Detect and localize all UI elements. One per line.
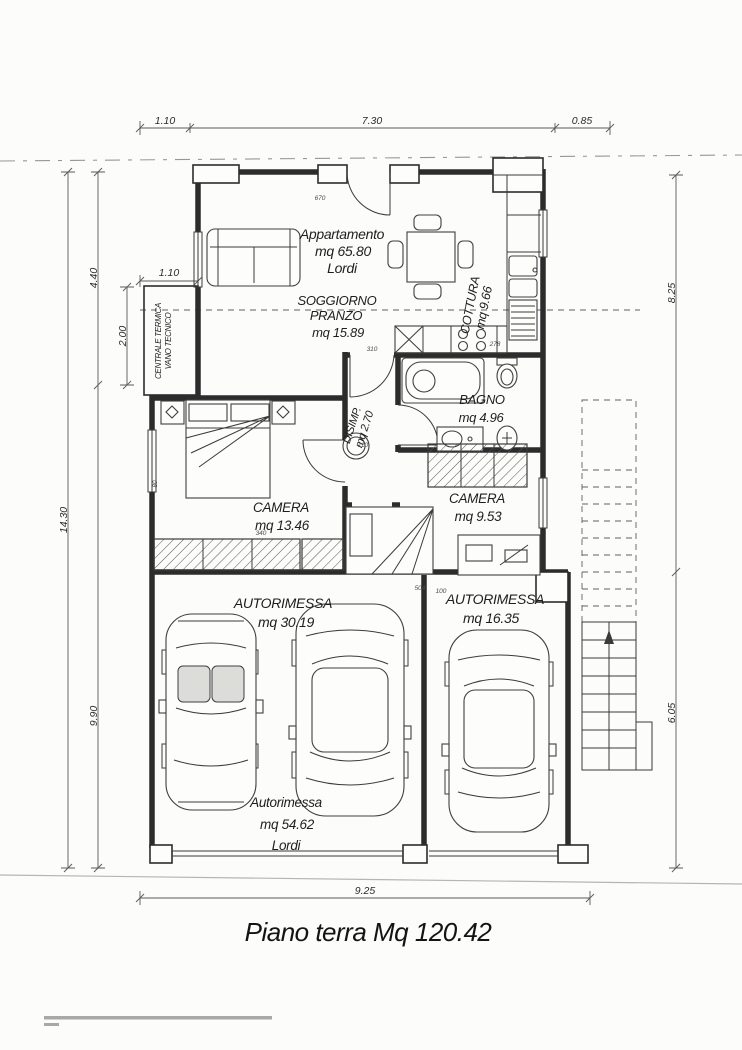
camera2-label-line2: mq 9.53 [455,509,502,524]
car-sedan-large [289,604,411,816]
chair [458,241,473,268]
wall-pier [318,165,347,183]
wall-pier [193,165,239,183]
stairs-up-arrow [604,630,614,644]
annotation: 310 [367,346,378,353]
car-sedan-small [442,630,556,832]
bedroom1-furniture [154,400,344,570]
stairs-upper-dashed [582,400,636,622]
sofa [207,229,300,286]
apartment-label-line3: Lordi [327,260,358,276]
floor-plan-drawing: 1.10 7.30 0.85 14.30 4.40 9.90 2.00 1.10… [0,0,742,1050]
garage-cars [159,604,556,832]
window [539,210,547,257]
mirror [256,700,263,713]
garage1-label-line1: AUTORIMESSA [233,595,332,611]
car-seat [178,666,210,702]
ground-line [0,875,742,884]
dish-drainer [509,300,537,340]
soggiorno-label-line1: SOGGIORNO [298,293,377,308]
dim-line-right [669,171,683,872]
centrale-termica-label: CENTRALE TERMICA VANO TECNICO [154,303,173,379]
apartment-label-line1: Appartamento [299,226,385,242]
bedroom1-door [303,440,345,482]
cottura-label: COTTURA mq 9.66 [458,275,497,338]
fine-print [44,1016,272,1026]
mirror [159,700,166,713]
plan-title: Piano terra Mq 120.42 [245,917,493,947]
dining-table [388,215,473,299]
dim-right-lower: 6.05 [666,703,678,724]
garage-pillar-middle [403,845,427,863]
chair [414,284,441,299]
entrance-door [347,172,390,215]
chair [388,241,403,268]
garage-total-label-line2: mq 54.62 [260,817,315,832]
stairs [582,400,652,770]
annotation: 80 [152,480,159,488]
centrale-label-line2: VANO TECNICO [164,312,173,369]
wall-pier [390,165,419,183]
garage-total-label-line3: Lordi [272,838,302,853]
soggiorno-label-line3: mq 15.89 [312,325,364,340]
dim-top-right: 0.85 [572,115,593,127]
garage1-label-line2: mq 30.19 [258,614,314,630]
dim-right-upper: 8.25 [666,283,678,304]
dim-left-outer: 14.30 [58,507,70,533]
mirror [549,744,556,756]
floor-plan-page: 1.10 7.30 0.85 14.30 4.40 9.90 2.00 1.10… [0,0,742,1050]
garage-pillar-right [558,845,588,863]
dim-top-middle: 7.30 [362,115,383,127]
dim-tecnico-width: 1.10 [159,267,180,279]
hallway-door [350,355,394,397]
single-bed [346,507,433,574]
stairs-landing [636,722,652,770]
dim-bottom: 9.25 [355,885,376,897]
garage-pillar-left [150,845,172,863]
desk [458,535,540,575]
window [539,478,547,528]
camera1-label-line1: CAMERA [253,500,309,515]
mirror [289,726,296,739]
stairs-lower-flight [582,622,652,770]
apartment-label-line2: mq 65.80 [315,243,371,259]
kitchen-sink [509,256,537,297]
bagno-label-line1: BAGNO [459,392,505,407]
annotation: 278 [489,341,501,348]
bagno-label-line2: mq 4.96 [459,410,505,425]
mirror [442,744,449,756]
garage2-label-line2: mq 16.35 [463,610,519,626]
garage-door-lines [172,851,558,856]
dim-tecnico-height: 2.00 [117,326,129,348]
double-bed [186,400,270,498]
annotation: 504 [415,585,426,592]
base-cabinets [395,326,507,353]
bathroom-door [398,405,438,445]
dim-left-lower: 9.90 [88,706,100,727]
annotation: 670 [315,195,326,202]
garage-total-label-line1: Autorimessa [249,795,323,810]
bedroom2-furniture [346,444,540,575]
soggiorno-label-line2: PRANZO [310,308,363,323]
car-convertible [159,614,263,810]
wardrobe [428,444,527,487]
toilet [497,358,517,388]
wardrobe [154,539,344,570]
dim-left-upper: 4.40 [88,268,100,289]
centrale-label-line1: CENTRALE TERMICA [154,303,163,379]
car-seat [212,666,244,702]
camera2-label-line1: CAMERA [449,491,505,506]
annotation: 340 [256,530,267,537]
annotation: 110 [358,442,369,449]
property-dashed-line [0,155,742,161]
mirror [404,726,411,739]
garage2-label-line1: AUTORIMESSA [445,591,544,607]
chair [414,215,441,230]
annotation: 100 [436,588,447,595]
dim-top-left: 1.10 [155,115,176,127]
